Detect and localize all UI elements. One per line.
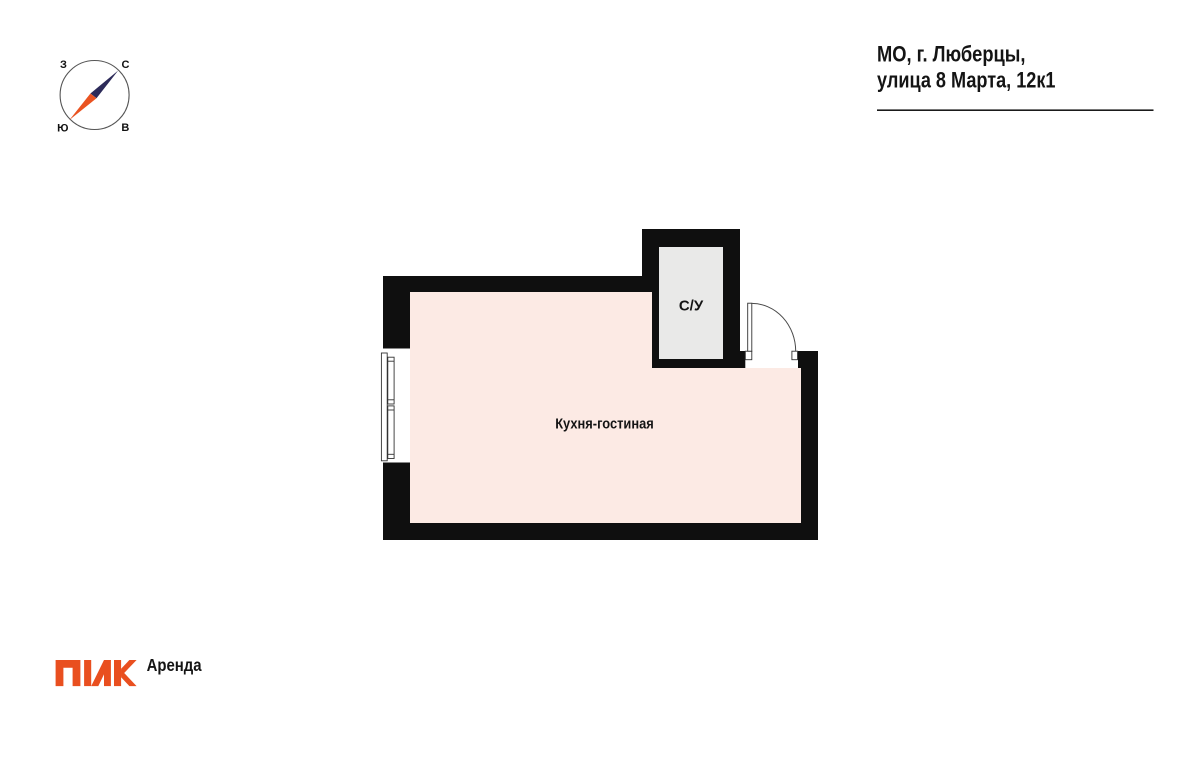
svg-text:Кухня-гостиная: Кухня-гостиная — [555, 416, 654, 433]
svg-text:Ю: Ю — [57, 123, 68, 135]
svg-text:С: С — [122, 59, 130, 71]
svg-text:С/У: С/У — [679, 298, 704, 315]
svg-text:В: В — [121, 122, 129, 134]
svg-text:Аренда: Аренда — [147, 655, 202, 675]
svg-text:улица 8 Марта, 12к1: улица 8 Марта, 12к1 — [877, 68, 1056, 93]
svg-text:З: З — [60, 59, 67, 71]
svg-text:МО, г. Люберцы,: МО, г. Люберцы, — [877, 42, 1026, 67]
